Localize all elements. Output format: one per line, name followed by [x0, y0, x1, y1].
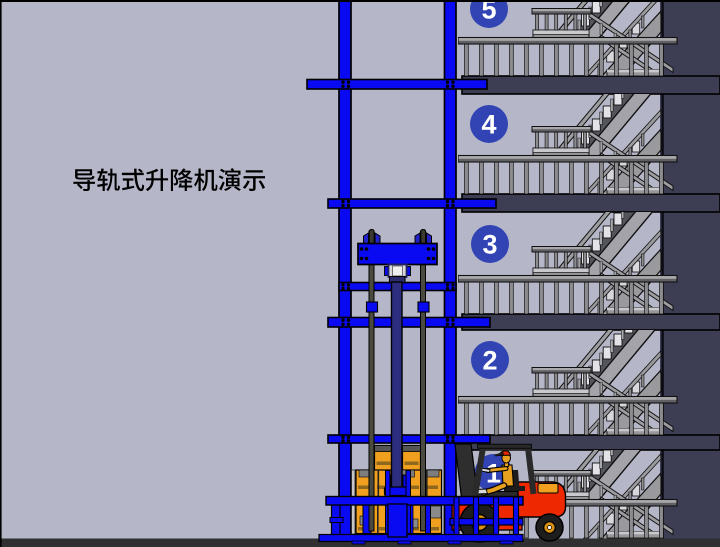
svg-text:2: 2	[482, 346, 497, 376]
svg-text:5: 5	[481, 0, 496, 25]
svg-text:1: 1	[486, 459, 501, 489]
svg-text:4: 4	[481, 110, 496, 140]
svg-text:3: 3	[482, 230, 497, 260]
